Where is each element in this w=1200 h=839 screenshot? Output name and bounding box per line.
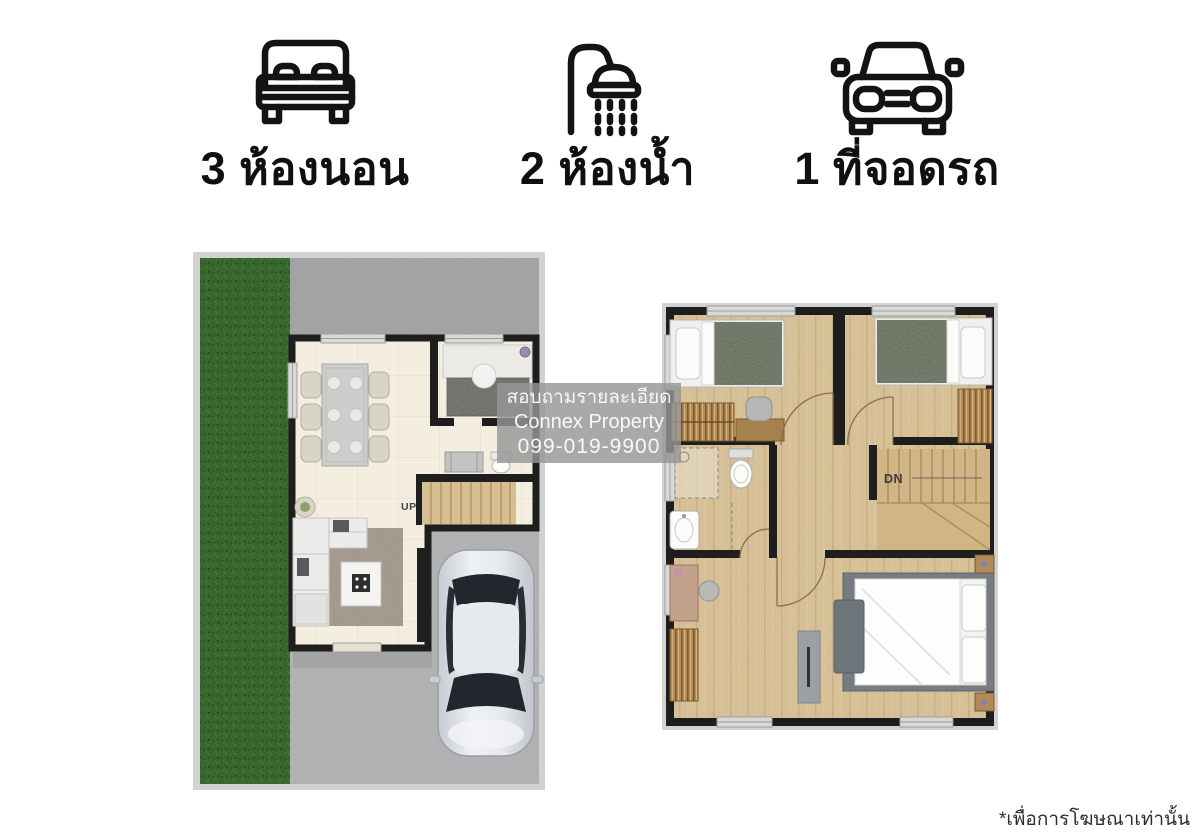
parking-label: 1 ที่จอดรถ — [794, 144, 999, 194]
bed-icon — [243, 30, 368, 138]
plant — [295, 497, 315, 517]
disclaimer-note: *เพื่อการโฆษณาเท่านั้น — [890, 804, 1190, 834]
bed-bench — [834, 600, 864, 673]
stool — [699, 581, 719, 601]
bathrooms-label: 2 ห้องน้ำ — [520, 144, 695, 194]
grass-strip — [200, 258, 290, 784]
staircase-down: DN — [877, 449, 990, 550]
shower-icon — [553, 30, 663, 138]
feature-bathrooms: 2 ห้องน้ำ — [495, 30, 720, 194]
master-wardrobe — [670, 629, 698, 701]
toilet-2 — [729, 449, 753, 488]
coffee-table — [341, 562, 381, 606]
watermark-line2: Connex Property — [514, 410, 664, 434]
watermark-line3: 099-019-9900 — [518, 434, 661, 459]
single-bed-left — [670, 320, 784, 387]
sink — [670, 511, 699, 549]
first-floor-plan: UP — [193, 252, 545, 795]
master-bed — [843, 573, 994, 691]
dn-label: DN — [884, 472, 903, 486]
watermark-line1: สอบถามรายละเอียด — [507, 387, 672, 410]
watermark: สอบถามรายละเอียด Connex Property 099-019… — [497, 383, 681, 463]
wardrobe-3 — [958, 389, 992, 443]
gray-panel — [798, 631, 820, 703]
single-bed-right — [875, 318, 992, 385]
car-icon — [830, 30, 965, 138]
bedroom-2 — [670, 320, 784, 441]
page-canvas: 3 ห้องนอน 2 ห้องน้ำ — [0, 0, 1200, 839]
parked-car — [429, 550, 543, 756]
bedrooms-label: 3 ห้องนอน — [201, 144, 410, 194]
up-label: UP — [401, 501, 417, 513]
feature-bedrooms: 3 ห้องนอน — [195, 30, 415, 194]
feature-parking: 1 ที่จอดรถ — [782, 30, 1012, 194]
second-floor-plan: DN — [662, 303, 998, 735]
dining-set — [301, 364, 389, 466]
